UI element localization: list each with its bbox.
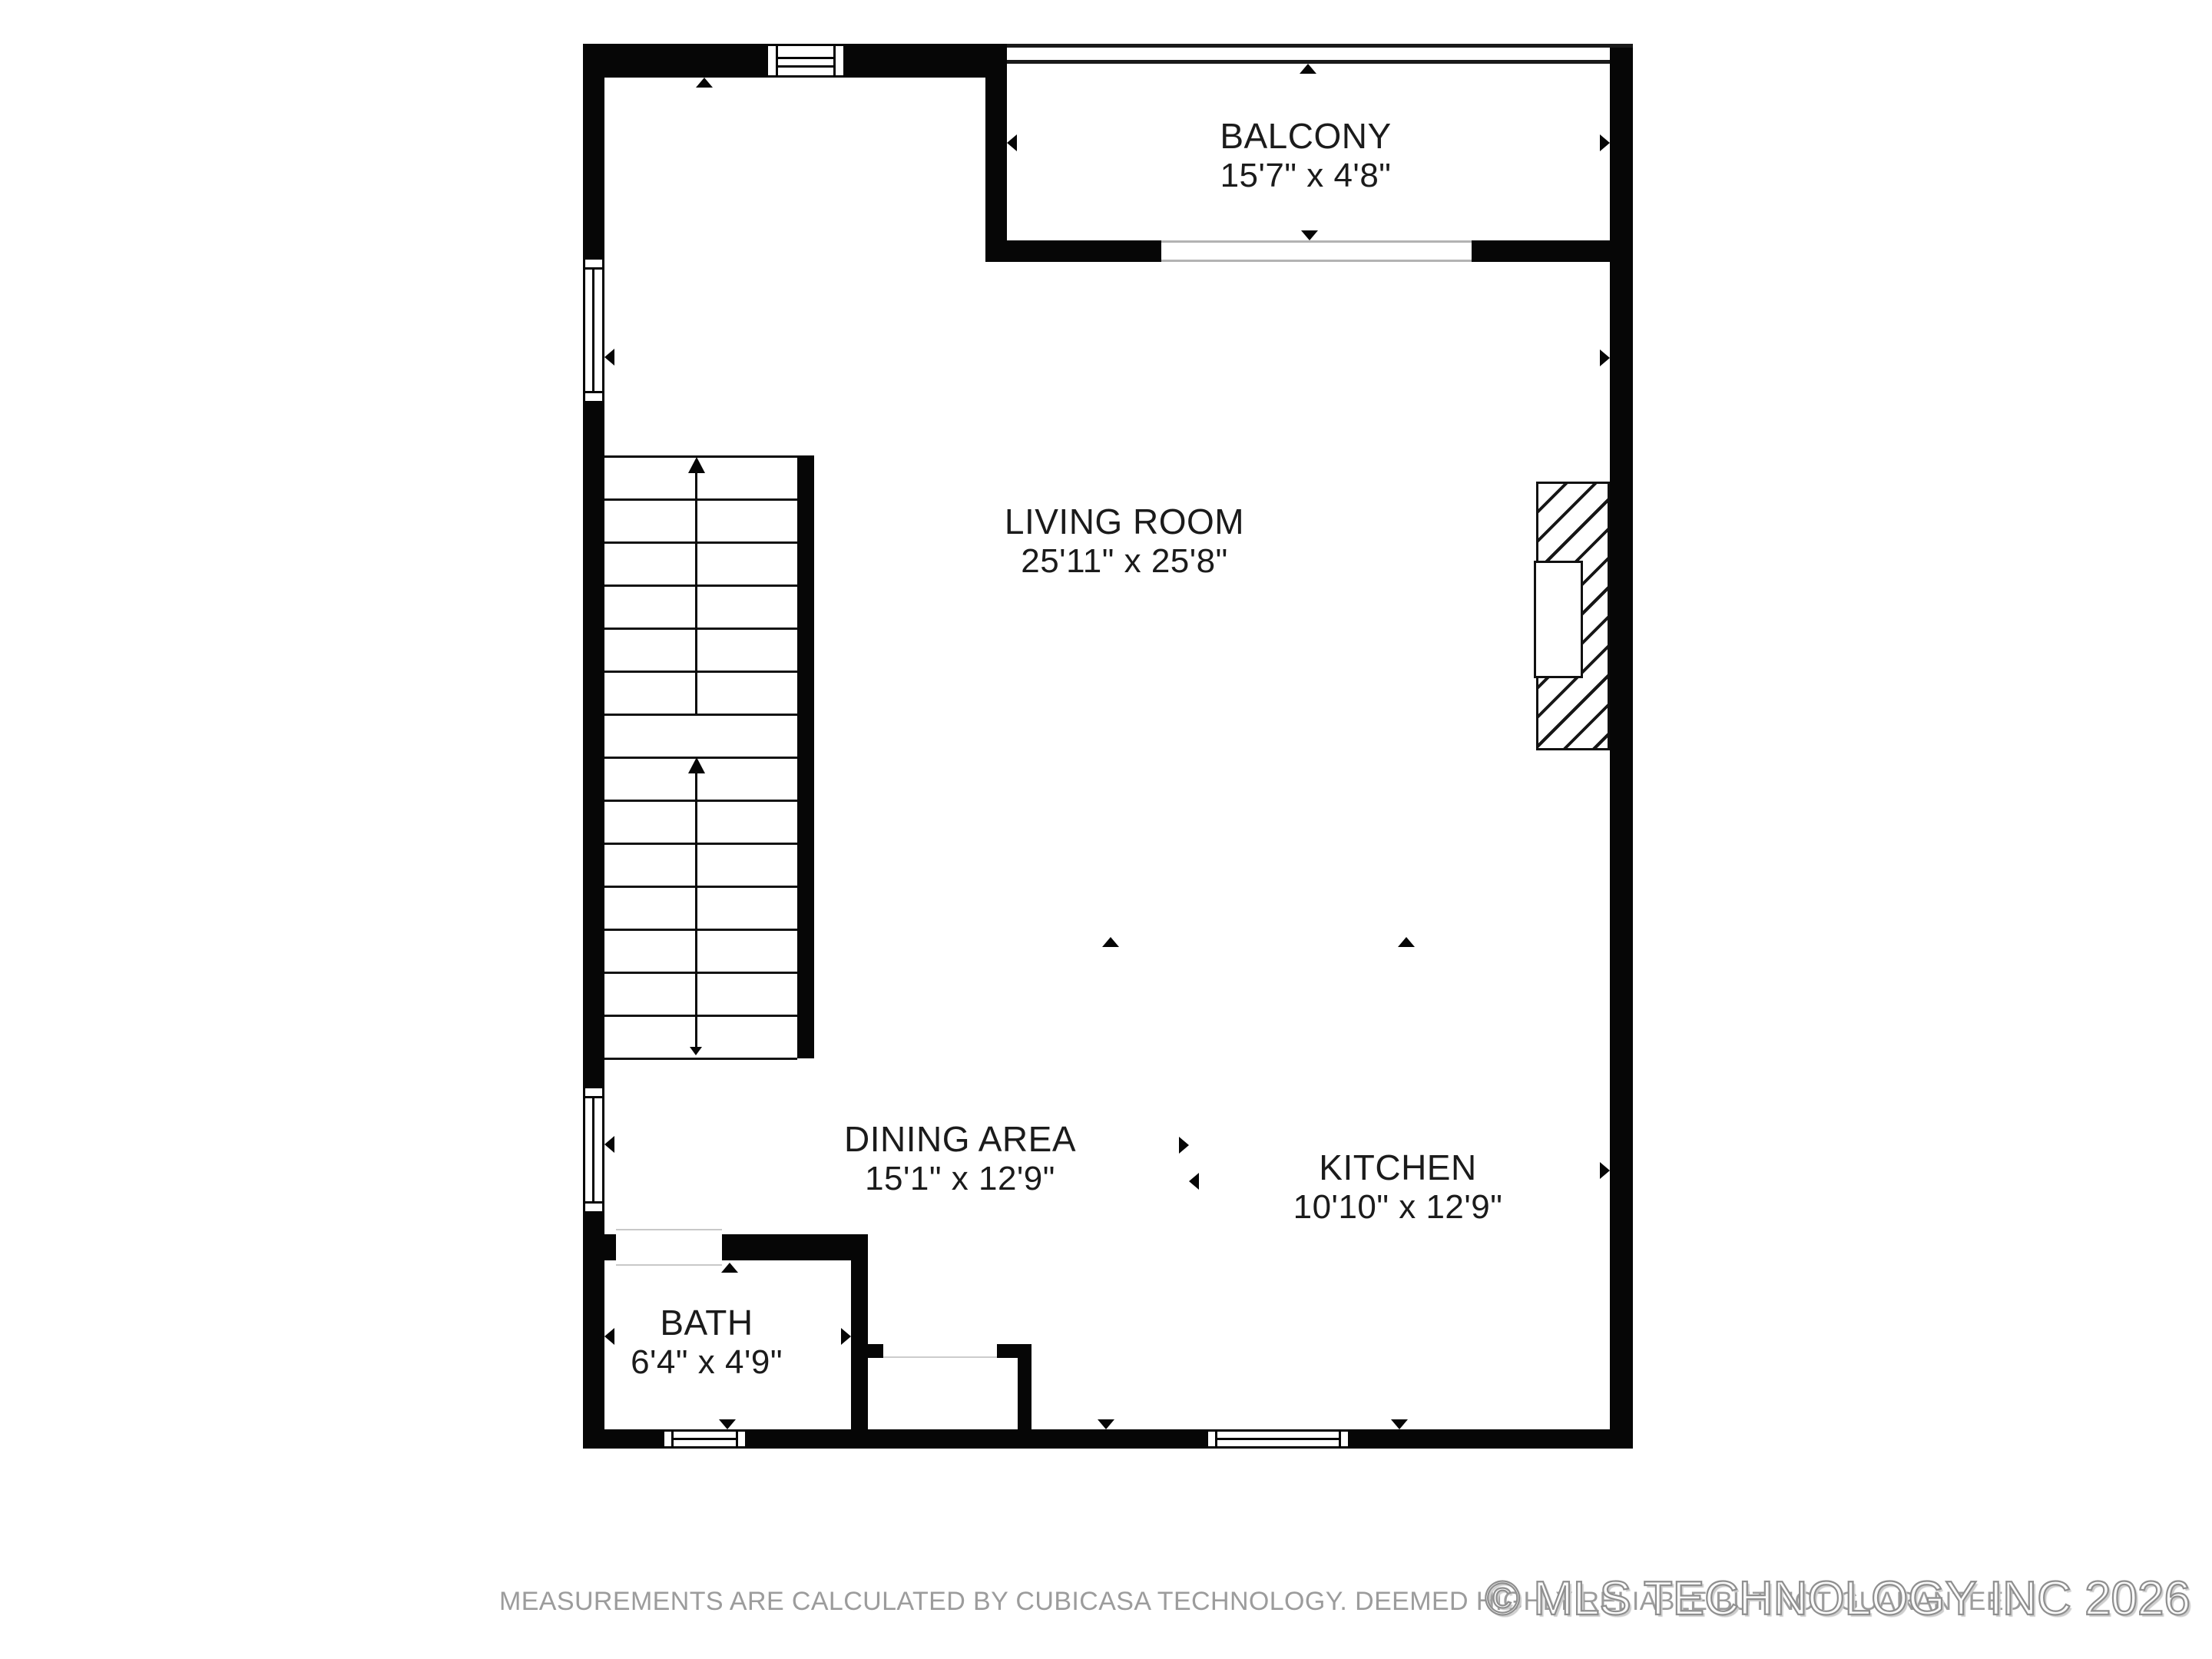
- arrow-marker-balcony-down: [1301, 230, 1318, 240]
- arrow-marker-bath-right: [841, 1328, 851, 1345]
- room-label-dining-area: DINING AREA 15'1" x 12'9": [844, 1120, 1076, 1198]
- arrow-marker-balcony-up: [1300, 64, 1316, 74]
- arrow-marker-bath-door-up: [721, 1263, 738, 1273]
- copyright-watermark: © MLS TECHNOLOGY INC 2026: [1485, 1571, 2190, 1626]
- stairs-arrow-lower-tail: [690, 1047, 702, 1055]
- arrow-marker-top-left-up: [696, 78, 713, 88]
- balcony-railing-outer: [1007, 44, 1633, 48]
- room-name: BALCONY: [1220, 117, 1391, 156]
- window-bath: [662, 1429, 747, 1449]
- room-label-balcony: BALCONY 15'7" x 4'8": [1220, 117, 1391, 195]
- arrow-marker-bottom-wall-down-1: [1098, 1419, 1114, 1429]
- arrow-marker-dining-up: [1102, 937, 1119, 947]
- wall-closet-stub-left: [868, 1344, 883, 1358]
- room-dimensions: 10'10" x 12'9": [1293, 1187, 1503, 1227]
- closet-opening-threshold: [883, 1356, 997, 1358]
- arrow-marker-balcony-right: [1600, 134, 1610, 151]
- arrow-marker-kitchen-up: [1398, 937, 1415, 947]
- room-dimensions: 25'11" x 25'8": [1005, 541, 1244, 581]
- window-top: [766, 44, 846, 78]
- stairs-arrow-upper-shaft: [695, 471, 697, 714]
- bath-door-opening: [616, 1229, 722, 1266]
- window-kitchen: [1206, 1429, 1350, 1449]
- wall-closet-right: [1018, 1344, 1031, 1429]
- arrow-marker-balcony-left: [1007, 134, 1017, 151]
- balcony-door-opening: [1161, 240, 1472, 262]
- room-dimensions: 6'4" x 4'9": [631, 1343, 783, 1382]
- arrow-marker-bath-window-down: [719, 1419, 736, 1429]
- room-name: BATH: [631, 1303, 783, 1343]
- wall-bath-right: [851, 1234, 868, 1449]
- arrow-marker-right-wall-upper: [1600, 349, 1610, 366]
- arrow-marker-bath-left: [604, 1328, 614, 1345]
- room-name: LIVING ROOM: [1005, 502, 1244, 541]
- arrow-marker-window-upper-left: [604, 349, 614, 366]
- wall-stairs-right: [797, 455, 814, 1058]
- room-name: KITCHEN: [1293, 1148, 1503, 1187]
- room-name: DINING AREA: [844, 1120, 1076, 1159]
- arrow-marker-kitchen-left: [1189, 1173, 1199, 1190]
- room-label-bath: BATH 6'4" x 4'9": [631, 1303, 783, 1382]
- fireplace-firebox: [1534, 561, 1583, 678]
- window-left-lower: [583, 1086, 604, 1214]
- room-label-kitchen: KITCHEN 10'10" x 12'9": [1293, 1148, 1503, 1227]
- arrow-marker-right-wall-lower: [1600, 1162, 1610, 1179]
- arrow-marker-dining-right: [1179, 1137, 1189, 1154]
- stairs-arrow-lower-shaft: [695, 771, 697, 1048]
- arrow-marker-bottom-wall-down-2: [1391, 1419, 1408, 1429]
- arrow-marker-window-lower-left: [604, 1136, 614, 1153]
- room-dimensions: 15'7" x 4'8": [1220, 156, 1391, 195]
- floor-plan: BALCONY 15'7" x 4'8" LIVING ROOM 25'11" …: [0, 0, 2212, 1659]
- window-left-upper: [583, 257, 604, 403]
- wall-balcony-divider: [985, 44, 1007, 262]
- room-dimensions: 15'1" x 12'9": [844, 1159, 1076, 1198]
- room-label-living-room: LIVING ROOM 25'11" x 25'8": [1005, 502, 1244, 581]
